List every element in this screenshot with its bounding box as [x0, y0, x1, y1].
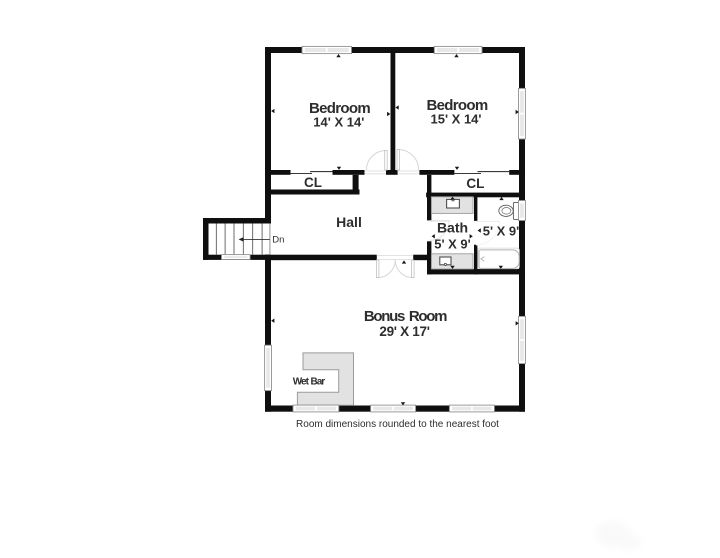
- svg-text:Hall: Hall: [336, 214, 362, 230]
- svg-text:CL: CL: [304, 175, 322, 190]
- svg-text:Dn: Dn: [272, 235, 284, 246]
- svg-text:Bonus Room: Bonus Room: [364, 308, 447, 325]
- svg-text:14' X 14': 14' X 14': [313, 115, 364, 130]
- svg-text:Bath: Bath: [437, 220, 468, 236]
- svg-text:29' X 17': 29' X 17': [379, 324, 429, 339]
- svg-text:5' X 9': 5' X 9': [434, 236, 471, 251]
- svg-text:5' X 9': 5' X 9': [483, 223, 520, 238]
- svg-text:15' X 14': 15' X 14': [431, 112, 482, 127]
- svg-text:CL: CL: [466, 176, 484, 191]
- svg-text:Room dimensions rounded to the: Room dimensions rounded to the nearest f…: [296, 419, 499, 430]
- svg-text:Wet Bar: Wet Bar: [293, 376, 326, 387]
